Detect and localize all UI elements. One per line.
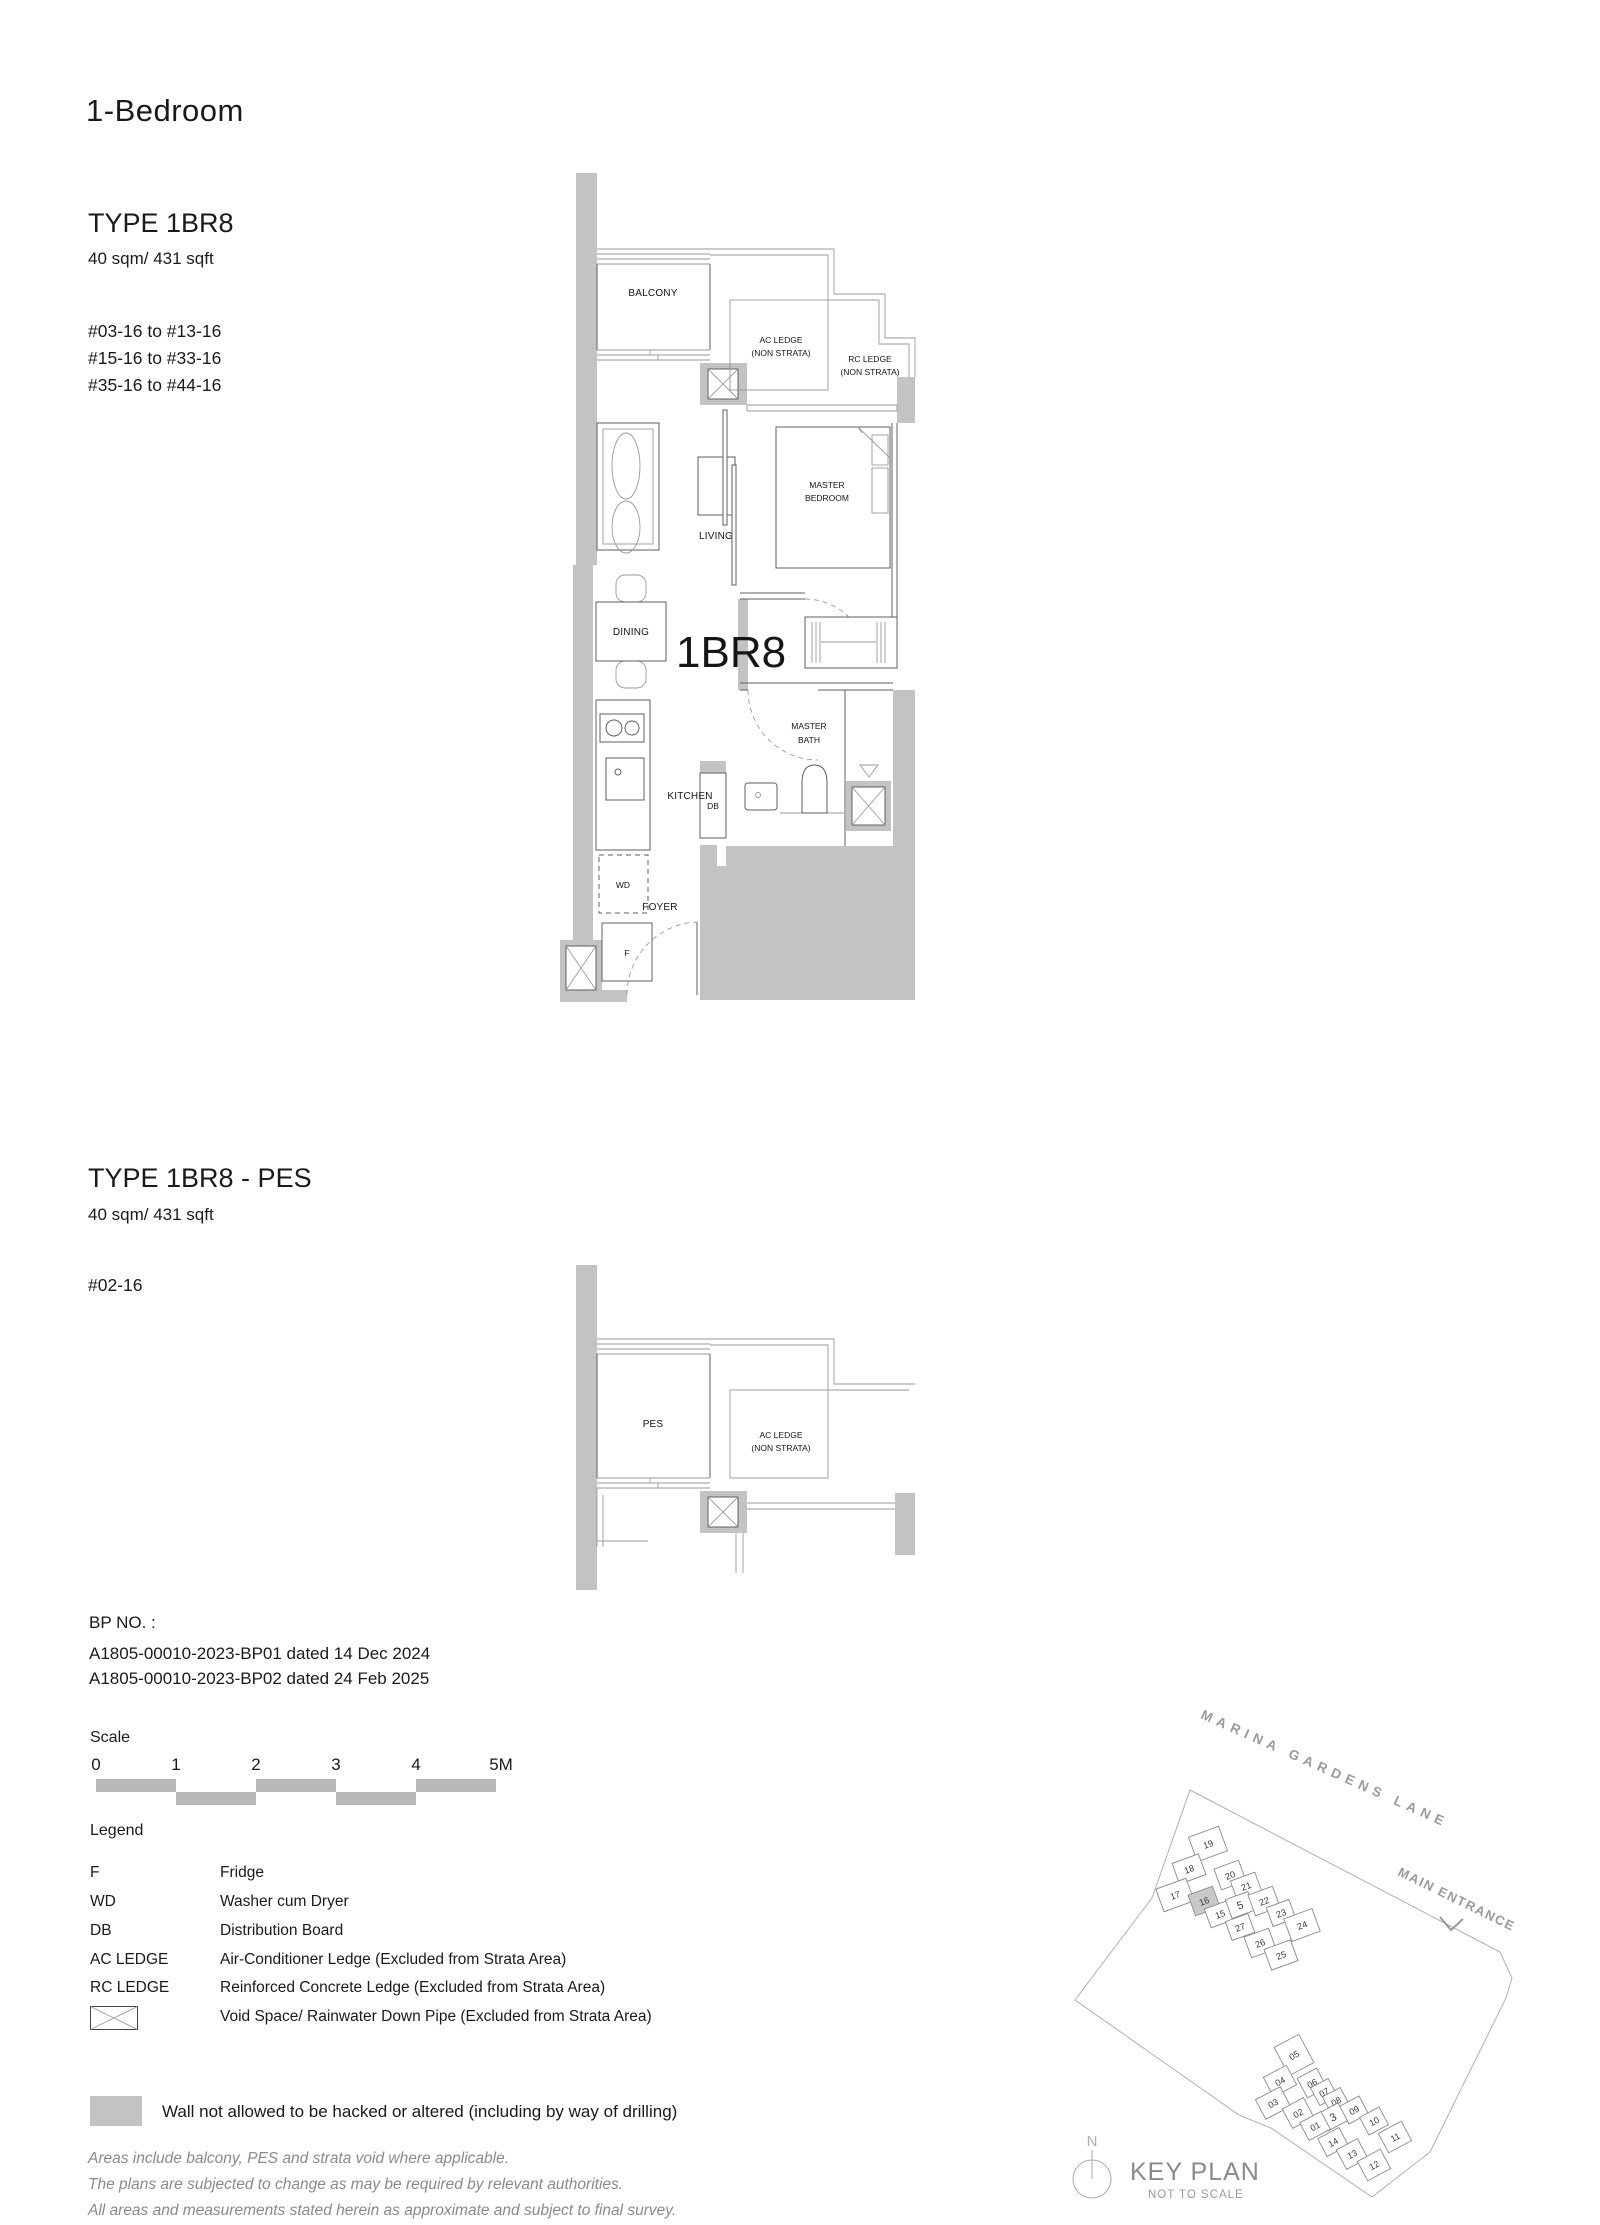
scale-tick: 2 [251,1755,260,1775]
keyplan-title: KEY PLAN [1130,2158,1260,2186]
void-space-icon [90,2006,138,2035]
scale-label: Scale [90,1729,130,1747]
wall-swatch-icon [90,2096,142,2126]
master-bedroom: MASTER BEDROOM [776,423,897,668]
unit-type-label: 1BR8 [676,628,786,677]
ac-ledge-label2: (NON STRATA) [751,1443,810,1453]
stack-line: #02-16 [88,1272,143,1299]
scale-bar: 0 1 2 3 4 5M [0,1755,600,1815]
floorplan-page: 1-Bedroom TYPE 1BR8 40 sqm/ 431 sqft #03… [0,0,1600,2225]
legend-title: Legend [90,1822,143,1840]
legend-desc: Washer cum Dryer [220,1893,349,1911]
scale-segment [256,1779,336,1792]
north-label: N [1087,2133,1098,2150]
scale-tick: 0 [91,1755,100,1775]
legend-desc: Reinforced Concrete Ledge (Excluded from… [220,1979,605,1997]
master-bath: MASTER BATH [740,683,893,846]
foyer-label: FOYER [642,902,677,913]
type2-area: 40 sqm/ 431 sqft [88,1205,214,1225]
svg-text:(NON STRATA): (NON STRATA) [751,1443,810,1453]
stack-line: #15-16 to #33-16 [88,345,221,372]
scale-tick: 5M [489,1755,513,1775]
type1-stacks: #03-16 to #13-16 #15-16 to #33-16 #35-16… [88,318,221,399]
master-bedroom-label: MASTER [809,480,844,490]
type2-name: TYPE 1BR8 - PES [88,1163,312,1194]
scale-tick: 1 [171,1755,180,1775]
legend-term: DB [90,1922,112,1940]
bp-label: BP NO. : [89,1610,430,1635]
ac-ledge-area: AC LEDGE (NON STRATA) [730,1390,828,1478]
master-bath-label2: BATH [798,735,820,745]
pes-room: PES [597,1339,915,1488]
window-strip [747,1503,895,1509]
living-room: LIVING [597,423,735,553]
keyplan-cluster-1: 19 18 17 20 21 16 15 5 22 23 24 27 26 25 [1156,1826,1320,1970]
drain-triangle-icon [860,765,878,777]
legend-term: WD [90,1893,116,1911]
svg-text:(NON STRATA): (NON STRATA) [840,367,899,377]
kitchen: KITCHEN WD F [596,700,713,981]
bedroom-window [747,405,897,411]
void-space-icon [708,1497,738,1527]
svg-text:AC LEDGE: AC LEDGE [760,1430,803,1440]
scale-segment [96,1779,176,1792]
svg-text:RC LEDGE: RC LEDGE [848,354,892,364]
scale-segment [176,1792,256,1805]
db-label: DB [707,801,719,811]
svg-text:AC LEDGE: AC LEDGE [760,335,803,345]
floorplan-1br8-pes: PES AC LEDGE (NON STRATA) [540,1255,920,1595]
entrance-arrow-icon [1440,1917,1463,1930]
master-bath-label: MASTER [791,721,826,731]
floorplan-1br8: BALCONY AC LEDGE (NON STRATA) RC LEDGE (… [540,165,920,1010]
keyplan-subtitle: NOT TO SCALE [1148,2189,1244,2201]
void-space-icon [708,369,738,399]
db-box: DB [700,773,726,838]
legend-desc: Fridge [220,1864,264,1882]
fridge-label: F [624,948,629,958]
bp-line: A1805-00010-2023-BP01 dated 14 Dec 2024 [89,1641,430,1666]
disclaimer-line: The plans are subjected to change as may… [88,2172,676,2198]
wd-label: WD [616,880,630,890]
dining-label: DINING [613,627,649,638]
scale-tick: 3 [331,1755,340,1775]
scale-tick: 4 [411,1755,420,1775]
ac-ledge-label: AC LEDGE [760,335,803,345]
legend-desc: Distribution Board [220,1922,343,1940]
rc-ledge-label: RC LEDGE [848,354,892,364]
toilet [802,765,827,813]
kitchen-label: KITCHEN [667,791,712,802]
legend-desc: Air-Conditioner Ledge (Excluded from Str… [220,1951,566,1969]
stack-line: #03-16 to #13-16 [88,318,221,345]
ac-ledge-label2: (NON STRATA) [751,348,810,358]
north-compass-icon: N [1073,2133,1111,2198]
disclaimer: Areas include balcony, PES and strata vo… [88,2146,676,2224]
legend-term: F [90,1864,99,1882]
legend-term: RC LEDGE [90,1979,169,1997]
master-bedroom-label2: BEDROOM [805,493,849,503]
bp-line: A1805-00010-2023-BP02 dated 24 Feb 2025 [89,1666,430,1691]
page-title: 1-Bedroom [86,93,244,129]
key-plan: MARINA GARDENS LANE MAIN ENTRANCE 19 18 … [1050,1670,1600,2215]
ac-ledge-label: AC LEDGE [760,1430,803,1440]
wall-note: Wall not allowed to be hacked or altered… [162,2102,677,2122]
balcony-label: BALCONY [628,288,677,299]
legend-term: AC LEDGE [90,1951,168,1969]
tv-console [698,457,735,515]
keyplan-cluster-2: 05 04 03 06 07 08 09 3 02 01 14 10 11 13… [1255,2034,1411,2181]
scale-segment [416,1779,496,1792]
type1-area: 40 sqm/ 431 sqft [88,249,214,269]
site-boundary [1075,1790,1512,2197]
wardrobe [805,617,897,668]
legend-desc: Void Space/ Rainwater Down Pipe (Exclude… [220,2008,652,2026]
scale-segment [336,1792,416,1805]
type1-name: TYPE 1BR8 [88,208,234,239]
type2-stacks: #02-16 [88,1272,143,1299]
rc-ledge-label2: (NON STRATA) [840,367,899,377]
road-label: MARINA GARDENS LANE [1199,1707,1452,1830]
rc-ledge-area: RC LEDGE (NON STRATA) [840,354,899,377]
disclaimer-line: All areas and measurements stated herein… [88,2198,676,2224]
stack-line: #35-16 to #44-16 [88,372,221,399]
void-space-icon [566,946,596,990]
disclaimer-line: Areas include balcony, PES and strata vo… [88,2146,676,2172]
living-label: LIVING [699,531,733,542]
svg-text:(NON STRATA): (NON STRATA) [751,348,810,358]
dining-area: DINING [596,575,666,688]
pes-label: PES [643,1419,664,1430]
bp-block: BP NO. : A1805-00010-2023-BP01 dated 14 … [89,1610,430,1691]
